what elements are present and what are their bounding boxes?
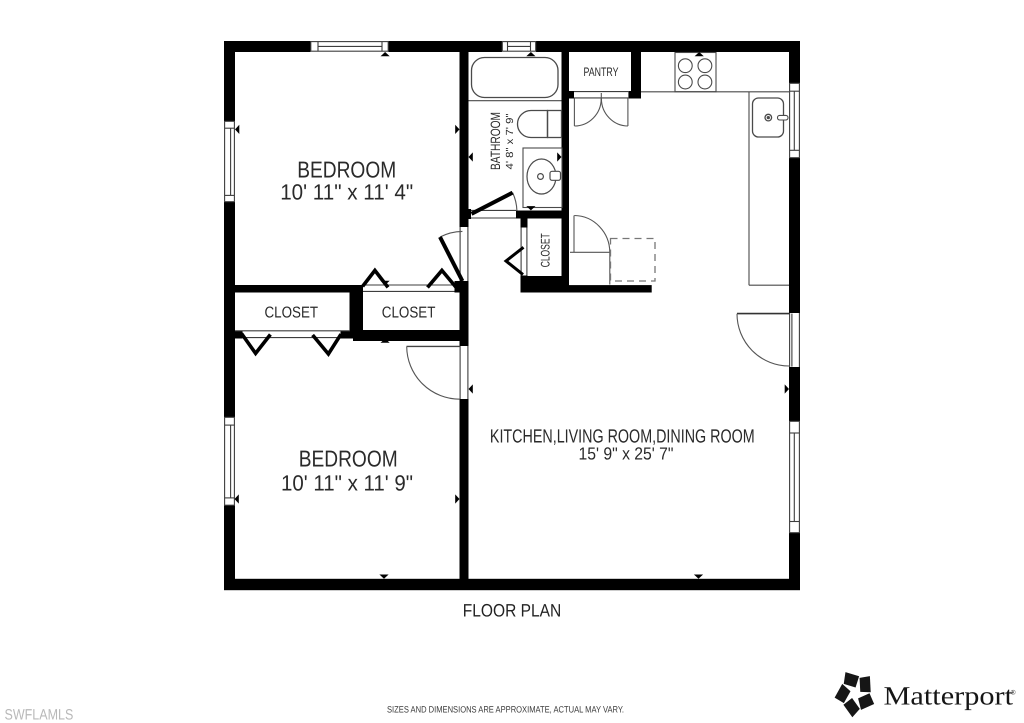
svg-text:CLOSET: CLOSET bbox=[382, 305, 436, 322]
svg-text:BATHROOM: BATHROOM bbox=[488, 112, 503, 170]
svg-text:10' 11" x 11' 4": 10' 11" x 11' 4" bbox=[280, 180, 413, 205]
svg-text:BEDROOM: BEDROOM bbox=[299, 446, 398, 472]
svg-text:4' 8" x 7' 9": 4' 8" x 7' 9" bbox=[505, 113, 516, 169]
svg-text:FLOOR PLAN: FLOOR PLAN bbox=[463, 601, 561, 621]
svg-text:SIZES AND DIMENSIONS ARE APPRO: SIZES AND DIMENSIONS ARE APPROXIMATE, AC… bbox=[387, 704, 624, 714]
svg-text:10' 11" x 11' 9": 10' 11" x 11' 9" bbox=[281, 471, 413, 496]
svg-text:15' 9" x 25' 7": 15' 9" x 25' 7" bbox=[579, 444, 674, 464]
svg-text:®: ® bbox=[1011, 689, 1017, 697]
svg-text:BEDROOM: BEDROOM bbox=[297, 156, 396, 182]
svg-text:CLOSET: CLOSET bbox=[538, 233, 552, 267]
svg-text:SWFLAMLS: SWFLAMLS bbox=[5, 707, 74, 723]
svg-text:PANTRY: PANTRY bbox=[584, 65, 619, 79]
svg-text:CLOSET: CLOSET bbox=[265, 305, 319, 322]
svg-text:Matterport: Matterport bbox=[884, 680, 1014, 710]
